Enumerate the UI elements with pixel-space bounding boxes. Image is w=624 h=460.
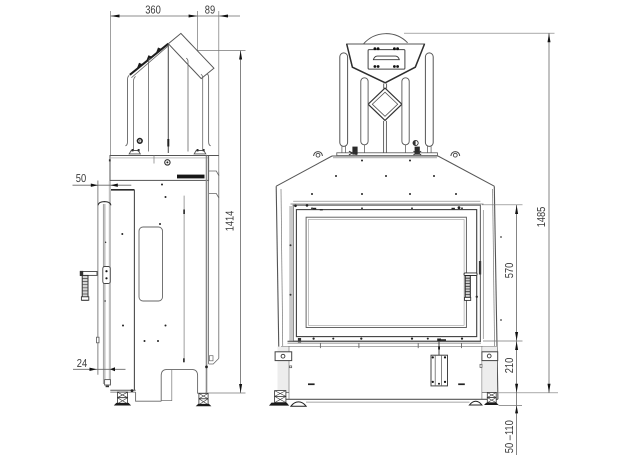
svg-text:50 –110: 50 –110 xyxy=(504,420,516,453)
svg-text:89: 89 xyxy=(205,5,215,17)
svg-text:210: 210 xyxy=(504,358,516,374)
svg-text:570: 570 xyxy=(504,263,516,279)
svg-text:1414: 1414 xyxy=(225,210,237,231)
svg-text:50: 50 xyxy=(76,173,86,185)
svg-text:1485: 1485 xyxy=(536,207,548,228)
svg-text:24: 24 xyxy=(77,358,88,370)
svg-text:360: 360 xyxy=(145,5,161,17)
